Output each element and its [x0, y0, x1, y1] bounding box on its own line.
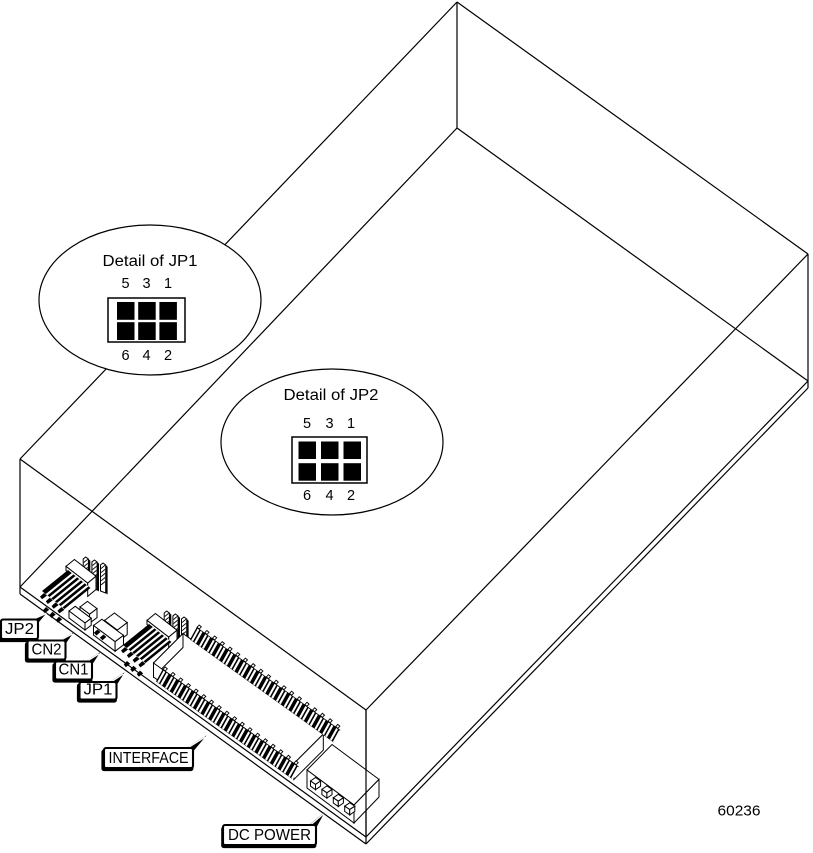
svg-text:5: 5 — [121, 276, 129, 292]
svg-text:Detail of JP2: Detail of JP2 — [284, 387, 379, 404]
svg-text:JP2: JP2 — [5, 621, 34, 638]
svg-text:3: 3 — [142, 276, 150, 292]
svg-text:CN1: CN1 — [59, 661, 89, 678]
svg-text:60236: 60236 — [718, 803, 761, 820]
svg-text:INTERFACE: INTERFACE — [109, 750, 189, 767]
svg-text:6: 6 — [121, 348, 129, 364]
svg-text:DC POWER: DC POWER — [228, 827, 311, 844]
svg-text:3: 3 — [325, 416, 333, 432]
svg-text:1: 1 — [164, 276, 172, 292]
svg-text:2: 2 — [347, 488, 355, 504]
svg-text:4: 4 — [142, 348, 150, 364]
svg-text:6: 6 — [303, 488, 311, 504]
svg-text:Detail of JP1: Detail of JP1 — [103, 253, 198, 270]
svg-text:JP1: JP1 — [84, 681, 113, 698]
svg-text:5: 5 — [303, 416, 311, 432]
svg-text:1: 1 — [347, 416, 355, 432]
svg-text:2: 2 — [164, 348, 172, 364]
svg-text:CN2: CN2 — [32, 641, 62, 658]
svg-text:4: 4 — [325, 488, 333, 504]
